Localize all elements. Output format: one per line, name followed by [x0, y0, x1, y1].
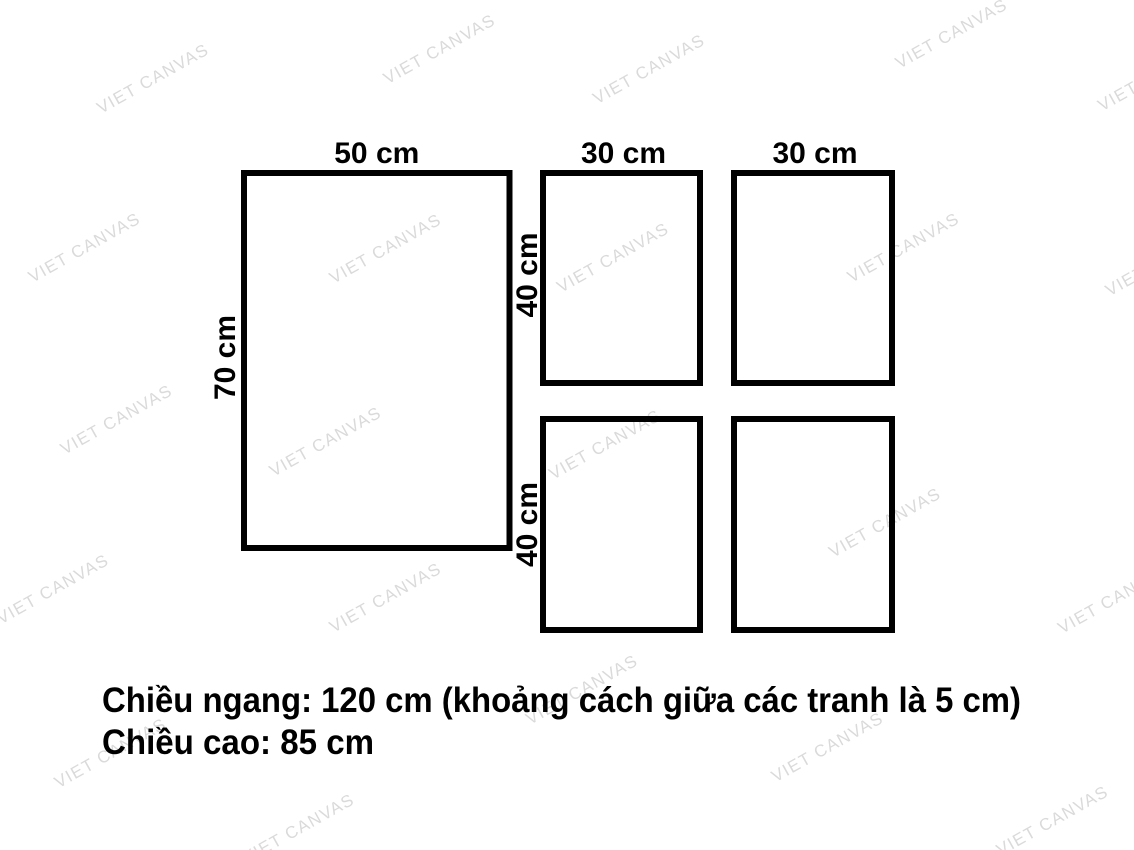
svg-text:Chiều cao: 85 cm: Chiều cao: 85 cm: [102, 723, 374, 762]
svg-text:30 cm: 30 cm: [581, 137, 666, 170]
svg-text:40 cm: 40 cm: [511, 482, 544, 567]
svg-text:40 cm: 40 cm: [511, 232, 544, 317]
svg-text:50 cm: 50 cm: [334, 137, 419, 170]
svg-text:Chiều ngang: 120 cm (khoảng cá: Chiều ngang: 120 cm (khoảng cách giữa cá…: [102, 681, 1021, 720]
svg-text:70 cm: 70 cm: [209, 315, 242, 400]
svg-text:30 cm: 30 cm: [772, 137, 857, 170]
